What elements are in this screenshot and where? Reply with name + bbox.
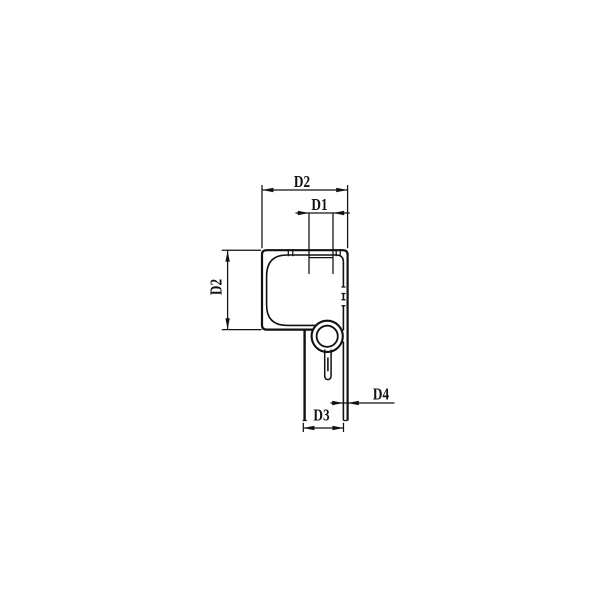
arrowhead-bottom [225, 318, 229, 329]
groove-side-walls [309, 213, 333, 274]
arrowhead-left [303, 426, 314, 430]
dimension-label: D4 [373, 385, 390, 404]
technical-drawing: D2 D1 D2 D4 D3 [0, 0, 604, 604]
dimension-left-overall-height: D2 [207, 250, 261, 329]
arrowhead-left [332, 401, 343, 405]
extension-lines [262, 185, 348, 248]
dimension-label: D2 [294, 173, 310, 192]
arrowhead-top [225, 251, 229, 262]
profile-outline [262, 213, 348, 421]
dimension-top-groove-width: D1 [296, 196, 350, 216]
dimension-label: D2 [207, 279, 226, 295]
cavity-left-and-bottom-edge [267, 276, 317, 325]
arrowhead-right [333, 211, 344, 215]
arrowhead-right [332, 426, 343, 430]
dimension-label: D3 [313, 406, 330, 425]
dimension-label: D1 [311, 196, 327, 215]
dimension-channel-width: D3 [303, 406, 343, 432]
dimension-top-overall-width: D2 [262, 173, 348, 249]
arrowhead-left [262, 188, 273, 192]
dimension-wall-thickness: D4 [331, 385, 395, 405]
arrowhead-right [336, 188, 347, 192]
drawing-canvas: D2 D1 D2 D4 D3 [0, 0, 604, 604]
arrowhead-left [298, 211, 309, 215]
arrowhead-right [348, 401, 359, 405]
boss-inner-circle [317, 326, 338, 347]
